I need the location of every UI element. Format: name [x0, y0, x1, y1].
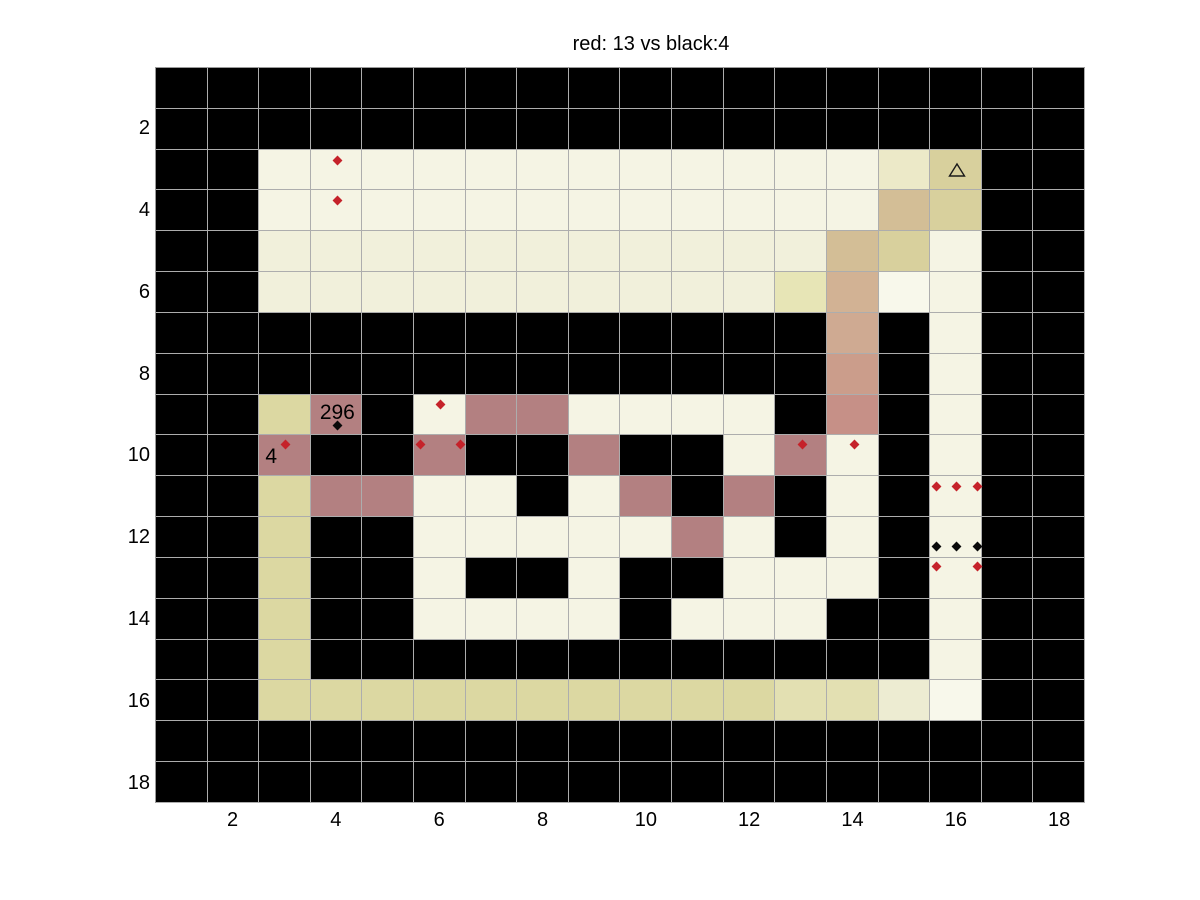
- grid-cell: [775, 517, 827, 558]
- grid-cell: [930, 599, 982, 640]
- grid-cell: [466, 517, 518, 558]
- grid-cell: [827, 599, 879, 640]
- grid-cell: [775, 68, 827, 109]
- grid-cell: [1033, 150, 1085, 191]
- grid-cell: [775, 272, 827, 313]
- x-tick-label: 18: [1029, 808, 1089, 832]
- grid-cell: [879, 721, 931, 762]
- grid-cell: [569, 558, 621, 599]
- grid-cell: [672, 558, 724, 599]
- grid-cell: [362, 109, 414, 150]
- grid-cell: [569, 68, 621, 109]
- y-tick-label: 18: [90, 771, 150, 795]
- grid-cell: [362, 640, 414, 681]
- grid-cell: [466, 721, 518, 762]
- grid-cell: [672, 354, 724, 395]
- grid-cell: [982, 231, 1034, 272]
- grid-cell: [517, 599, 569, 640]
- grid-cell: [1033, 640, 1085, 681]
- grid-cell: [982, 354, 1034, 395]
- grid-cell: [156, 762, 208, 803]
- grid-cell: [724, 313, 776, 354]
- grid-cell: [775, 558, 827, 599]
- grid-cell: [311, 558, 363, 599]
- grid-cell: [724, 395, 776, 436]
- grid-cell: [259, 476, 311, 517]
- grid-cell: [466, 762, 518, 803]
- grid-cell: [879, 272, 931, 313]
- grid-cell: [259, 313, 311, 354]
- grid-cell: [827, 721, 879, 762]
- grid-cell: [517, 517, 569, 558]
- grid-cell: [569, 680, 621, 721]
- grid-cell: [259, 599, 311, 640]
- y-tick-label: 10: [90, 443, 150, 467]
- grid-cell: [1033, 762, 1085, 803]
- grid-cell: [672, 313, 724, 354]
- grid-cell: [311, 231, 363, 272]
- grid-cell: [982, 476, 1034, 517]
- grid-cell: [208, 313, 260, 354]
- grid-cell: [775, 231, 827, 272]
- grid-cell: [311, 313, 363, 354]
- grid-cell: [672, 68, 724, 109]
- grid-cell: [775, 395, 827, 436]
- grid-cell: [208, 599, 260, 640]
- grid-cell: [620, 354, 672, 395]
- grid-cell: [930, 721, 982, 762]
- grid-cell: [517, 762, 569, 803]
- grid-cell: [982, 721, 1034, 762]
- grid-cell: [827, 313, 879, 354]
- grid-cell: [156, 599, 208, 640]
- grid-cell: [1033, 599, 1085, 640]
- grid-cell: [827, 150, 879, 191]
- grid-cell: [466, 476, 518, 517]
- grid-cell: [466, 680, 518, 721]
- y-tick-label: 2: [90, 116, 150, 140]
- grid-cell: [620, 680, 672, 721]
- grid-cell: [672, 150, 724, 191]
- grid-cell: [259, 517, 311, 558]
- grid-cell: [569, 190, 621, 231]
- grid-cell: [775, 476, 827, 517]
- grid-cell: [311, 640, 363, 681]
- grid-cell: [1033, 272, 1085, 313]
- grid-cell: [362, 721, 414, 762]
- grid-cell: [879, 680, 931, 721]
- grid-cell: [672, 721, 724, 762]
- grid-cell: [569, 231, 621, 272]
- grid-cell: [414, 680, 466, 721]
- grid-cell: [620, 517, 672, 558]
- grid-cell: [569, 313, 621, 354]
- grid-cell: [466, 272, 518, 313]
- grid-cell: [672, 109, 724, 150]
- grid-cell: [517, 150, 569, 191]
- grid-cell: [672, 395, 724, 436]
- grid-cell: [414, 517, 466, 558]
- grid-cell: [362, 762, 414, 803]
- grid-cell: [930, 109, 982, 150]
- grid-cell: [879, 640, 931, 681]
- grid-cell: [466, 354, 518, 395]
- grid-cell: [466, 68, 518, 109]
- grid-cell: [724, 762, 776, 803]
- grid-cell: [259, 231, 311, 272]
- grid-cell: [1033, 231, 1085, 272]
- grid-cell: [311, 762, 363, 803]
- grid-cell: [311, 109, 363, 150]
- grid-cell: [827, 272, 879, 313]
- grid-cell: [156, 109, 208, 150]
- grid-cell: [466, 435, 518, 476]
- grid-cell: [827, 476, 879, 517]
- grid-cell: [259, 109, 311, 150]
- grid-cell: [517, 435, 569, 476]
- triangle-marker: [948, 162, 966, 178]
- grid-cell: [311, 517, 363, 558]
- grid-cell: [156, 680, 208, 721]
- grid-cell: [775, 313, 827, 354]
- grid-cell: [569, 435, 621, 476]
- grid-cell: [208, 762, 260, 803]
- grid-cell: [775, 109, 827, 150]
- grid-cell: [879, 395, 931, 436]
- grid-cell: [362, 558, 414, 599]
- grid-cell: [156, 558, 208, 599]
- grid-cell: [1033, 190, 1085, 231]
- grid-cell: [259, 150, 311, 191]
- grid-cell: [259, 395, 311, 436]
- grid-cell: [156, 721, 208, 762]
- y-tick-label: 6: [90, 280, 150, 304]
- grid-cell: [569, 395, 621, 436]
- y-tick-label: 14: [90, 607, 150, 631]
- grid-cell: [156, 150, 208, 191]
- grid-cell: [517, 721, 569, 762]
- grid-cell: [156, 231, 208, 272]
- grid-cell: [724, 558, 776, 599]
- grid-cell: [311, 354, 363, 395]
- grid-cell: [311, 272, 363, 313]
- grid-cell: [517, 109, 569, 150]
- grid-cell: [775, 599, 827, 640]
- grid-cell: [724, 231, 776, 272]
- grid-cell: [672, 599, 724, 640]
- grid-cell: [362, 517, 414, 558]
- grid-cell: [569, 517, 621, 558]
- grid-cell: [775, 680, 827, 721]
- grid-cell: [982, 313, 1034, 354]
- grid-cell: [466, 599, 518, 640]
- grid-cell: [1033, 395, 1085, 436]
- grid-cell: [156, 190, 208, 231]
- grid-cell: [775, 721, 827, 762]
- grid-cell: [569, 721, 621, 762]
- grid-cell: [259, 190, 311, 231]
- grid-cell: [879, 354, 931, 395]
- grid-cell: [208, 721, 260, 762]
- grid-cell: [517, 313, 569, 354]
- grid-cell: [569, 150, 621, 191]
- grid-cell: [569, 599, 621, 640]
- x-tick-label: 4: [306, 808, 366, 832]
- grid-cell: [827, 109, 879, 150]
- grid-cell: [827, 680, 879, 721]
- grid-cell: [466, 150, 518, 191]
- grid-cell: [827, 517, 879, 558]
- grid-cell: [259, 354, 311, 395]
- grid-cell: [672, 190, 724, 231]
- grid-cell: [517, 231, 569, 272]
- grid-cell: [672, 680, 724, 721]
- grid-cell: [827, 395, 879, 436]
- grid-cell: [982, 558, 1034, 599]
- grid-cell: [982, 190, 1034, 231]
- grid-cell: [827, 762, 879, 803]
- grid-cell: [672, 640, 724, 681]
- grid-cell: [311, 680, 363, 721]
- grid-cell: [414, 109, 466, 150]
- grid-cell: [930, 354, 982, 395]
- grid-cell: [1033, 680, 1085, 721]
- grid-cell: [362, 680, 414, 721]
- grid-cell: [569, 109, 621, 150]
- grid-cell: [827, 558, 879, 599]
- figure-canvas: red: 13 vs black:4 2964 24681012141618 2…: [0, 0, 1200, 900]
- grid-cell: [208, 680, 260, 721]
- grid-cell: [259, 272, 311, 313]
- grid-cell: [517, 354, 569, 395]
- grid-cell: [620, 109, 672, 150]
- grid-cell: [466, 190, 518, 231]
- grid-cell: [620, 435, 672, 476]
- grid-cell: [620, 640, 672, 681]
- grid-cell: [982, 680, 1034, 721]
- grid-cell: [259, 680, 311, 721]
- grid-cell: [569, 354, 621, 395]
- grid-cell: [517, 68, 569, 109]
- grid-cell: [414, 354, 466, 395]
- grid-cell: [414, 272, 466, 313]
- grid-cell: [879, 231, 931, 272]
- grid-cell: [930, 190, 982, 231]
- grid-cell: [259, 762, 311, 803]
- grid-cell: [930, 435, 982, 476]
- grid-cell: [466, 109, 518, 150]
- grid-cell: [466, 640, 518, 681]
- grid-cell: [208, 68, 260, 109]
- grid-cell: [879, 190, 931, 231]
- grid-cell: [156, 272, 208, 313]
- grid-cell: [414, 721, 466, 762]
- grid-cell: [517, 190, 569, 231]
- grid-cell: [775, 354, 827, 395]
- grid-cell: [466, 313, 518, 354]
- grid-cell: [672, 762, 724, 803]
- grid-cell: [827, 68, 879, 109]
- grid-cell: [156, 476, 208, 517]
- grid-cell: [208, 109, 260, 150]
- grid-cell: [827, 354, 879, 395]
- grid-cell: [982, 599, 1034, 640]
- grid-cell: [724, 150, 776, 191]
- grid-cell: [1033, 476, 1085, 517]
- x-tick-label: 10: [616, 808, 676, 832]
- grid-cell: [362, 231, 414, 272]
- grid-cell: [414, 476, 466, 517]
- grid-cell: [259, 68, 311, 109]
- grid-cell: [156, 68, 208, 109]
- grid-cell: [672, 435, 724, 476]
- grid-cell: [156, 395, 208, 436]
- grid-cell: [982, 762, 1034, 803]
- grid-cell: [672, 517, 724, 558]
- grid-cell: [930, 313, 982, 354]
- grid-cell: [311, 435, 363, 476]
- grid-cell: [414, 68, 466, 109]
- x-tick-label: 6: [409, 808, 469, 832]
- grid-cell: [311, 476, 363, 517]
- grid-cell: [879, 517, 931, 558]
- grid-cell: [1033, 313, 1085, 354]
- grid-cell: [208, 476, 260, 517]
- grid-cell: [1033, 109, 1085, 150]
- grid-cell: [982, 272, 1034, 313]
- grid-cell: [569, 640, 621, 681]
- grid-cell: [517, 395, 569, 436]
- grid-cell: [414, 558, 466, 599]
- grid-cell: [879, 476, 931, 517]
- grid-cell: [930, 231, 982, 272]
- grid-cell: [517, 558, 569, 599]
- grid-cell: [466, 231, 518, 272]
- grid-cell: [775, 190, 827, 231]
- grid-cell: [982, 640, 1034, 681]
- grid-cell: [414, 190, 466, 231]
- grid-cell: [311, 721, 363, 762]
- grid-cell: [879, 150, 931, 191]
- grid-cell: [208, 640, 260, 681]
- grid-cell: [724, 354, 776, 395]
- chart-title: red: 13 vs black:4: [573, 33, 730, 56]
- grid-cell: [362, 476, 414, 517]
- grid-cell: [930, 272, 982, 313]
- grid-cell: [724, 68, 776, 109]
- grid-cell: [775, 762, 827, 803]
- grid-cell: [620, 599, 672, 640]
- grid-cell: [620, 272, 672, 313]
- grid-cell: [724, 272, 776, 313]
- grid-cell: [311, 68, 363, 109]
- grid-cell: [879, 762, 931, 803]
- grid-cell: [930, 680, 982, 721]
- grid-cell: [208, 272, 260, 313]
- grid-cell: [620, 476, 672, 517]
- grid-cell: [362, 354, 414, 395]
- grid-cell: [259, 640, 311, 681]
- grid-cell: [466, 395, 518, 436]
- grid-cell: [208, 190, 260, 231]
- grid-cell: [672, 231, 724, 272]
- grid-cell: [879, 558, 931, 599]
- grid-cell: [724, 190, 776, 231]
- grid-cell: [982, 395, 1034, 436]
- grid-cell: [362, 150, 414, 191]
- grid-cell: [517, 640, 569, 681]
- grid-cell: [827, 231, 879, 272]
- grid-cell: [362, 599, 414, 640]
- grid-cell: [672, 272, 724, 313]
- grid-cell: [879, 109, 931, 150]
- grid-cell: [362, 272, 414, 313]
- grid-cell: [930, 640, 982, 681]
- y-tick-label: 4: [90, 198, 150, 222]
- grid-cell: [620, 558, 672, 599]
- grid-cell: [620, 231, 672, 272]
- grid-cell: [362, 313, 414, 354]
- grid-cell: [414, 313, 466, 354]
- grid-cell: [414, 640, 466, 681]
- grid-cell: [1033, 517, 1085, 558]
- grid-cell: [930, 68, 982, 109]
- y-tick-label: 12: [90, 525, 150, 549]
- grid-cell: [1033, 721, 1085, 762]
- grid-cell: [620, 190, 672, 231]
- grid-cell: [414, 231, 466, 272]
- grid-cell: [620, 150, 672, 191]
- grid-cell: [879, 435, 931, 476]
- grid-cell: [982, 109, 1034, 150]
- grid-cell: [156, 517, 208, 558]
- y-tick-label: 8: [90, 362, 150, 386]
- grid-cell: [1033, 435, 1085, 476]
- grid-cell: [414, 150, 466, 191]
- grid-cell: [569, 476, 621, 517]
- grid-cell: [620, 68, 672, 109]
- grid-cell: [311, 599, 363, 640]
- grid-cell: [879, 599, 931, 640]
- grid-cell: [517, 680, 569, 721]
- grid-cell: [930, 762, 982, 803]
- grid-cell: [208, 395, 260, 436]
- grid-cell: [724, 517, 776, 558]
- grid-cell: [620, 313, 672, 354]
- grid-cell: [156, 640, 208, 681]
- grid-cell: [724, 721, 776, 762]
- grid-cell: [1033, 68, 1085, 109]
- grid-cell: [879, 68, 931, 109]
- grid-cell: [827, 640, 879, 681]
- grid-cell: [208, 354, 260, 395]
- grid-cell: [982, 68, 1034, 109]
- grid-cell: [259, 558, 311, 599]
- grid-cell: [208, 150, 260, 191]
- grid-cell: [208, 231, 260, 272]
- grid-cell: [982, 150, 1034, 191]
- cell-label: 296: [320, 401, 355, 425]
- grid-cell: [1033, 354, 1085, 395]
- grid-cell: [724, 435, 776, 476]
- grid-cell: [362, 68, 414, 109]
- grid-cell: [517, 476, 569, 517]
- grid-cell: [620, 762, 672, 803]
- cell-label: 4: [265, 445, 277, 469]
- grid-cell: [724, 109, 776, 150]
- grid-cell: [569, 762, 621, 803]
- grid-cell: [414, 599, 466, 640]
